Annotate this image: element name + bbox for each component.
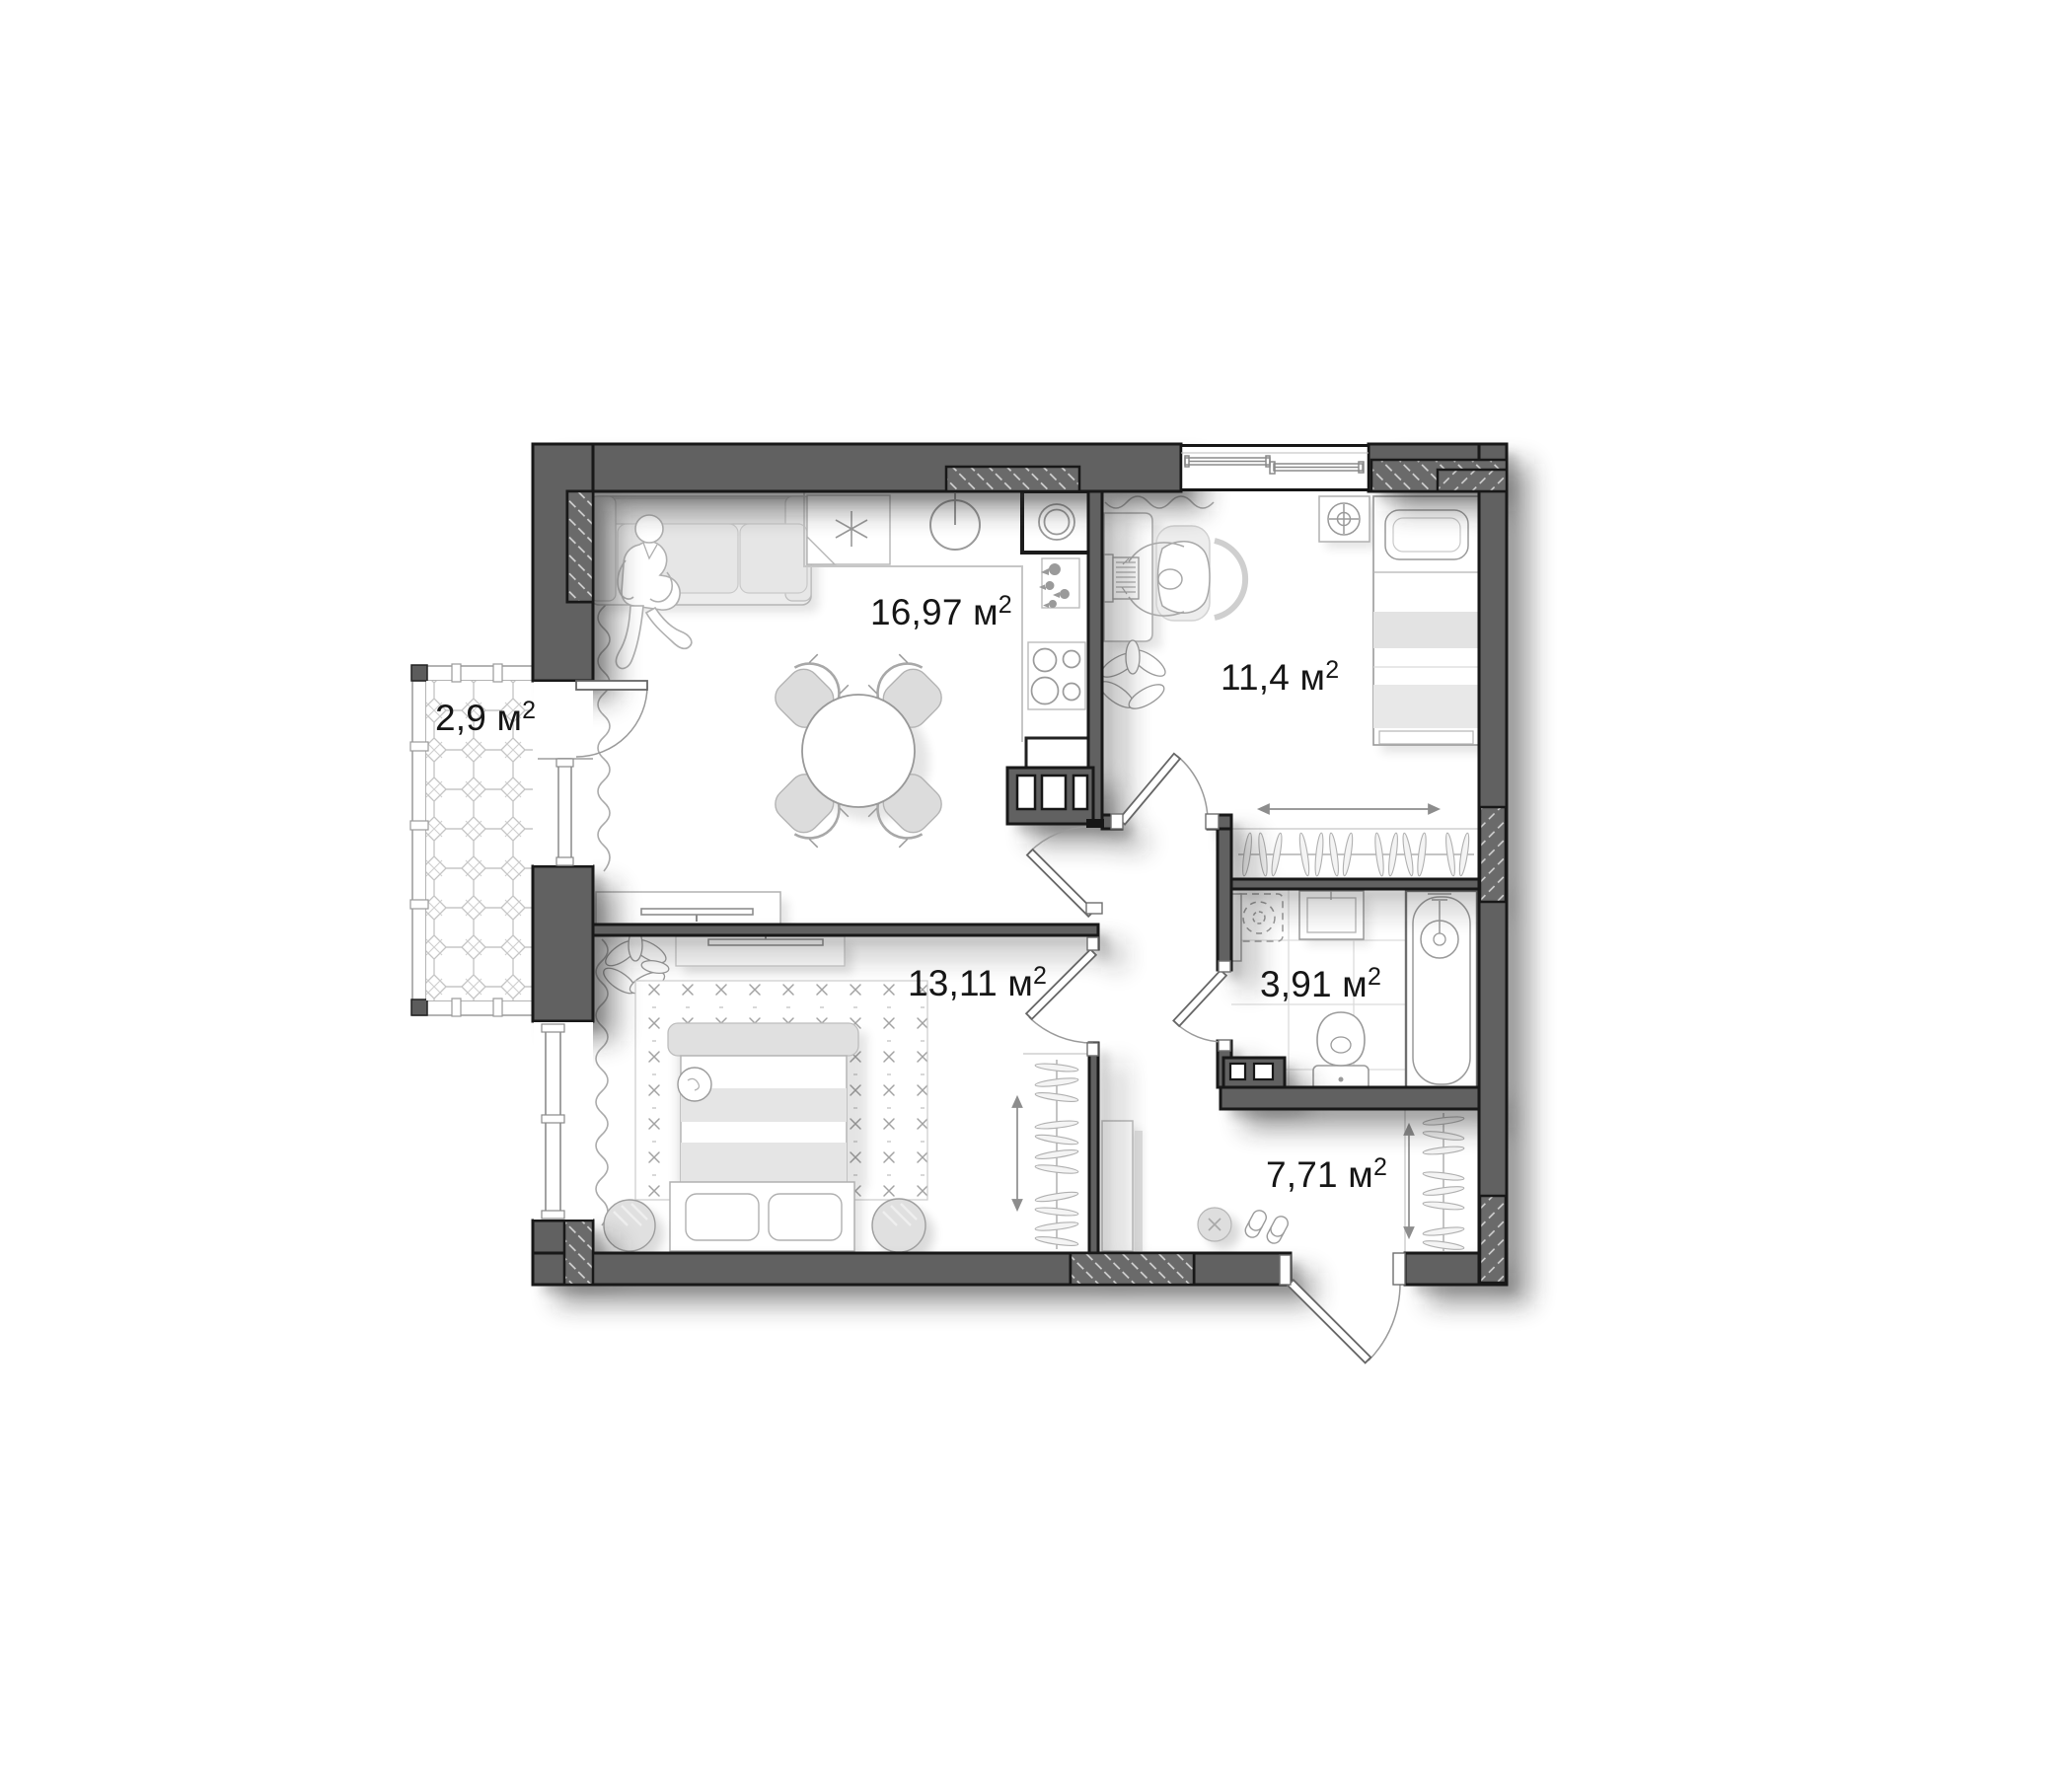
svg-text:3,91 м2: 3,91 м2: [1260, 963, 1381, 1004]
svg-text:7,71 м2: 7,71 м2: [1266, 1153, 1387, 1195]
svg-text:13,11 м2: 13,11 м2: [908, 962, 1047, 1003]
svg-text:16,97 м2: 16,97 м2: [870, 591, 1012, 632]
svg-text:2,9 м2: 2,9 м2: [435, 697, 536, 738]
svg-text:11,4 м2: 11,4 м2: [1221, 656, 1339, 698]
